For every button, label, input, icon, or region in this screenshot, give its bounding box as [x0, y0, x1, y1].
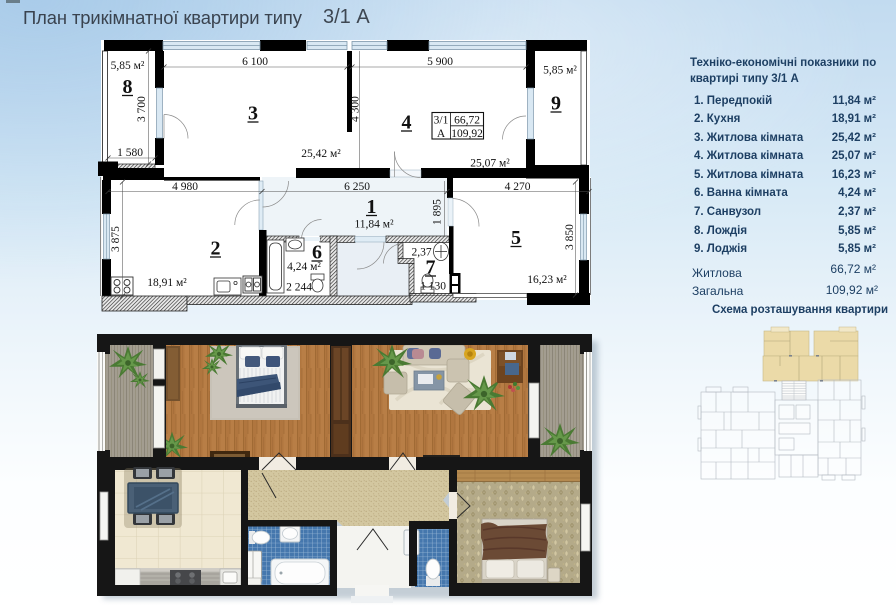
svg-text:66,72: 66,72: [454, 115, 480, 127]
svg-text:1 895: 1 895: [432, 199, 444, 225]
svg-text:9: 9: [551, 93, 561, 115]
svg-text:18,91 м²: 18,91 м²: [147, 277, 187, 289]
svg-text:109,92: 109,92: [451, 128, 483, 140]
svg-text:3 700: 3 700: [136, 96, 148, 122]
svg-text:3/1: 3/1: [434, 115, 449, 127]
svg-text:5 900: 5 900: [427, 56, 453, 68]
svg-text:4: 4: [402, 112, 412, 134]
svg-text:25,42 м²: 25,42 м²: [301, 148, 341, 160]
svg-text:6: 6: [312, 242, 322, 264]
svg-text:4 980: 4 980: [172, 181, 198, 193]
svg-text:11,84 м²: 11,84 м²: [354, 219, 394, 231]
svg-text:3 875: 3 875: [110, 226, 122, 252]
svg-text:16,23 м²: 16,23 м²: [527, 274, 567, 286]
svg-text:4 270: 4 270: [505, 181, 531, 193]
svg-text:2: 2: [211, 238, 221, 260]
svg-text:5,85 м²: 5,85 м²: [111, 60, 145, 72]
svg-text:5: 5: [511, 227, 521, 249]
svg-text:7: 7: [426, 257, 436, 279]
svg-text:А: А: [437, 128, 446, 140]
svg-text:4 300: 4 300: [350, 96, 362, 122]
svg-text:3 850: 3 850: [564, 224, 576, 250]
svg-text:1 130: 1 130: [420, 281, 446, 293]
svg-text:6 250: 6 250: [344, 181, 370, 193]
svg-text:5,85 м²: 5,85 м²: [543, 65, 577, 77]
svg-text:1: 1: [367, 196, 377, 218]
svg-text:6 100: 6 100: [242, 56, 268, 68]
svg-text:25,07 м²: 25,07 м²: [470, 158, 510, 170]
svg-text:8: 8: [123, 76, 133, 98]
svg-text:3: 3: [248, 103, 258, 125]
svg-text:1 580: 1 580: [117, 147, 143, 159]
svg-text:2 244: 2 244: [286, 282, 312, 294]
